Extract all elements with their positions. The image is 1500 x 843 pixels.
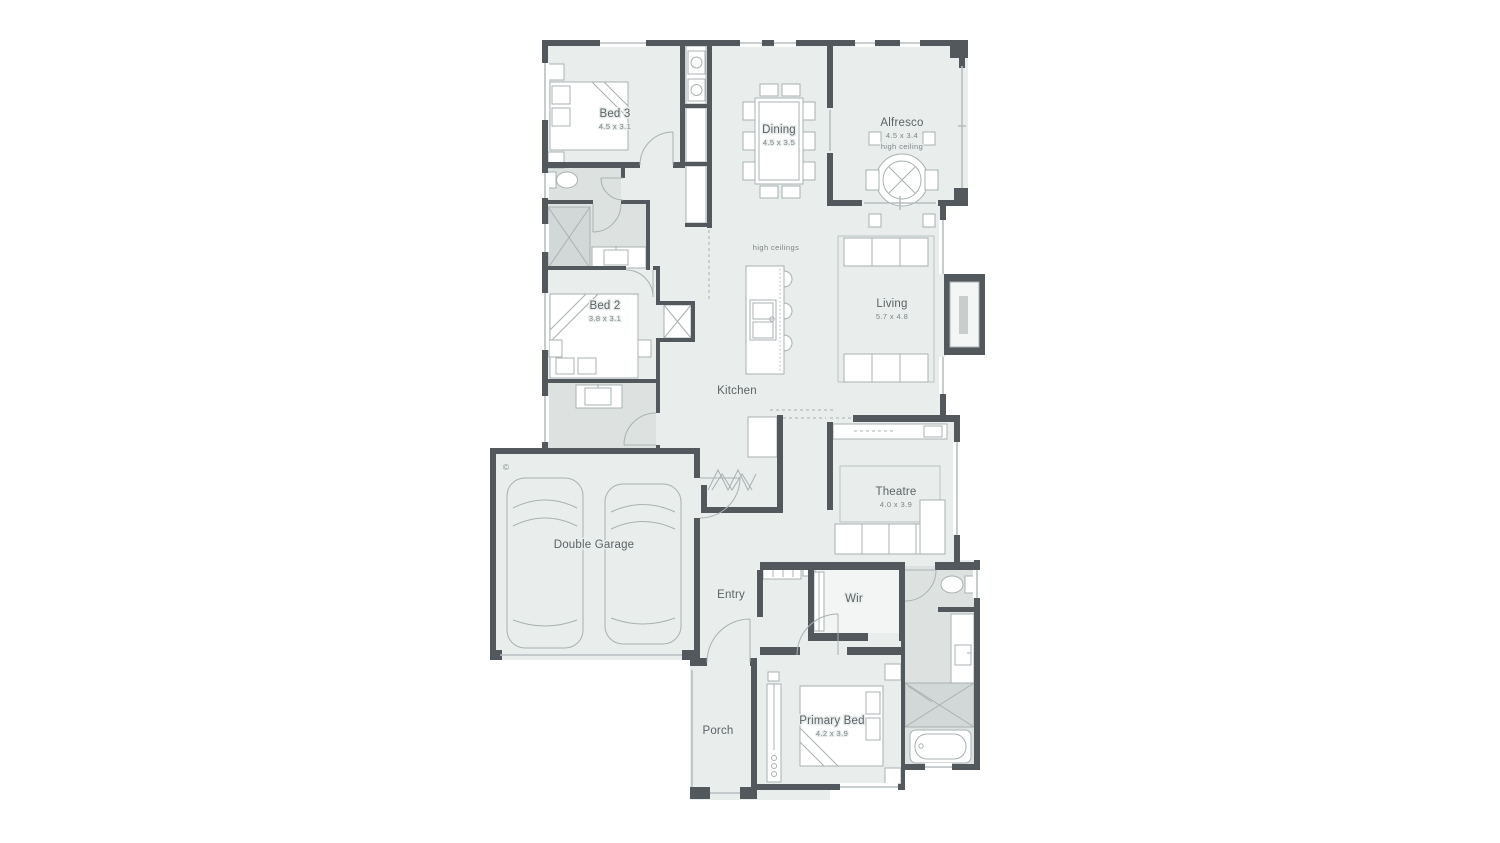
ensuite-toilet-icon	[941, 576, 974, 593]
ensuite-shower-icon	[905, 683, 974, 727]
room-label-living: Living	[876, 298, 907, 310]
floorplan-page: Bed 3 4.5 x 3.1 Dining 4.5 x 3.5 Alfresc…	[0, 0, 1500, 843]
bed2-robe-icon	[664, 305, 691, 338]
bathroom-vanity-icon	[592, 246, 646, 268]
room-label-bed2: Bed 2	[589, 300, 620, 312]
wc-toilet-icon	[548, 172, 578, 188]
room-label-garage: Double Garage	[554, 539, 635, 551]
room-dims-dining: 4.5 x 3.5	[763, 138, 795, 147]
bathtub-icon	[910, 730, 971, 763]
laundry-trough-icon	[576, 384, 622, 408]
room-label-entry: Entry	[717, 589, 745, 601]
room-dims-theatre: 4.0 x 3.9	[880, 500, 912, 509]
copyright-mark: ©	[503, 462, 510, 472]
high-ceilings-note: high ceilings	[753, 243, 799, 252]
theatre-bench-icon	[833, 424, 947, 439]
wir-shelf-icon	[814, 572, 824, 631]
room-dims-primary: 4.2 x 3.9	[816, 729, 848, 738]
room-note-alfresco: high ceiling	[881, 142, 923, 151]
room-label-primary: Primary Bed	[799, 715, 864, 727]
room-label-wir: Wir	[845, 593, 863, 605]
floorplan-drawing: Bed 3 4.5 x 3.1 Dining 4.5 x 3.5 Alfresc…	[488, 38, 988, 808]
room-dims-bed2: 3.8 x 3.1	[589, 314, 621, 323]
media-niche	[944, 274, 985, 355]
room-label-alfresco: Alfresco	[880, 117, 923, 129]
room-label-kitchen: Kitchen	[717, 385, 757, 397]
appliance-nook-icon	[686, 46, 706, 104]
room-dims-living: 5.7 x 4.8	[876, 312, 908, 321]
bathroom-shower-icon	[548, 207, 590, 268]
primary-robe-icon	[767, 672, 781, 782]
room-dims-alfresco: 4.5 x 3.4	[886, 131, 918, 140]
room-label-bed3: Bed 3	[599, 108, 630, 120]
room-dims-bed3: 4.5 x 3.1	[599, 122, 631, 131]
room-label-theatre: Theatre	[875, 486, 916, 498]
room-label-dining: Dining	[762, 124, 796, 136]
room-label-porch: Porch	[702, 725, 733, 737]
